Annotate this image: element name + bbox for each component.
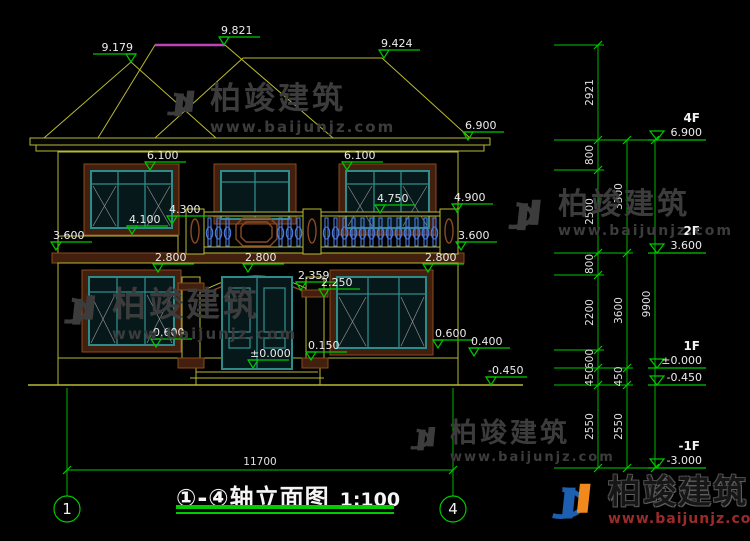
dim-value: 450 [584,366,596,386]
pilaster-base [178,358,204,368]
elevation-drawing: 1 4 11700 9.1799.8219.4246.9006.1006.100… [0,0,750,541]
window-1f-left [82,270,181,352]
elevation-value: 9.424 [381,37,413,50]
baluster-bulge [332,227,338,239]
elevation-marker: 9.821 [219,24,260,45]
baluster-bulge [277,227,283,239]
balcony-pedestal [303,209,321,254]
elevation-value: 2.250 [321,276,353,289]
balcony-octagon-inner [241,222,272,242]
pilaster-capital [178,283,204,290]
dim-value: 450 [613,366,625,386]
company-logo: 柏竣建筑 www.baijunjz.com [544,474,750,536]
elevation-value: 6.100 [344,149,376,162]
baluster [208,218,211,246]
baluster-bulge [224,227,230,239]
baluster-bulge [206,227,212,239]
title-underline-thin [176,512,394,514]
floor-marker: -3.000-1F [648,439,706,468]
eave-soffit [36,145,484,151]
dim-value: 9900 [641,291,653,318]
elevation-value: 0.150 [308,339,340,352]
elevation-value: 3.600 [458,229,490,242]
elevation-value: 2.800 [155,251,187,264]
elevation-marker: 3.600 [456,229,497,250]
elevation-value: 0.400 [471,335,503,348]
floor-label: -1F [678,439,700,453]
elevation-value: 2.800 [425,251,457,264]
baluster [334,218,337,246]
title-underline-thick [176,505,394,509]
elevation-marker: 0.600 [433,327,474,348]
dim-value: 2550 [584,413,596,440]
eave-fascia [30,138,490,145]
roof-left-pyramid [44,62,216,138]
baluster-bulge [215,227,221,239]
floor-marker: -0.450 [648,371,706,385]
baluster [325,218,328,246]
dim-value: 2200 [584,299,596,326]
elevation-value: 6.100 [147,149,179,162]
elevation-value: 4.100 [129,213,161,226]
pilaster-left [182,277,200,368]
elevation-value: 4.300 [169,203,201,216]
floor-marker: 6.9004F [648,111,706,140]
pilaster-base [302,358,328,368]
floor-marker: ±0.0001F [648,339,706,368]
elevation-marker: -0.450 [486,364,527,385]
dim-value: 2550 [613,413,625,440]
elevation-marker: 0.400 [469,335,510,356]
dim-value: 800 [584,145,596,165]
elevation-value: 9.179 [102,41,134,54]
baluster [297,218,300,246]
elevation-value: -0.450 [488,364,523,377]
elevation-marker: 9.424 [379,37,420,58]
baluster-bulge [295,227,301,239]
dim-value: 2921 [584,79,596,106]
dim-value: 800 [584,254,596,274]
elevation-marker: 9.179 [93,41,136,62]
logo-url-text: www.baijunjz.com [608,511,750,527]
elevation-value: 6.900 [465,119,497,132]
dim-value: 600 [584,349,596,369]
floor-marker: 3.6002F [648,224,706,253]
elevation-value: 0.600 [435,327,467,340]
elevation-value: 4.750 [377,192,409,205]
elevation-value: 2.800 [245,251,277,264]
logo-brand-text: 柏竣建筑 [608,474,750,510]
floor-elevation: 3.600 [671,239,703,252]
cad-canvas: 1 4 11700 9.1799.8219.4246.9006.1006.100… [0,0,750,541]
floor-markers-layer: 6.9004F3.6002F±0.0001F-0.450-3.000-1F [648,111,706,468]
floor-label: 4F [683,111,700,125]
floor-elevation: -0.450 [667,371,702,384]
axis-bubble-1-label: 1 [62,500,72,518]
elevation-value: 3.600 [53,229,85,242]
elevation-value: 9.821 [221,24,253,37]
baluster-bulge [286,227,292,239]
elevation-value: 4.900 [454,191,486,204]
floor-elevation: ±0.000 [661,354,702,367]
brick-base-right [320,358,458,385]
floor-label: 2F [683,224,700,238]
overall-dim-text: 11700 [243,456,276,468]
baluster-bulge [323,227,329,239]
baijun-logo-color-icon [544,474,602,536]
elevation-value: 0.600 [153,326,185,339]
dimension-chains-layer: 2921800250080022006004502550330036004502… [554,41,661,472]
floor-label: 1F [683,339,700,353]
floor-elevation: -3.000 [667,454,702,467]
balcony-pedestal [440,209,458,254]
dim-chain: 2921800250080022006004502550 [554,41,604,472]
floor-elevation: 6.900 [671,126,703,139]
axis-bubble-4-label: 4 [448,500,458,518]
roof [30,45,490,151]
dim-value: 3600 [613,297,625,324]
brick-base-left [58,358,196,385]
elevation-value: ±0.000 [250,347,291,360]
dim-value: 3300 [613,183,625,210]
dim-value: 2500 [584,198,596,225]
